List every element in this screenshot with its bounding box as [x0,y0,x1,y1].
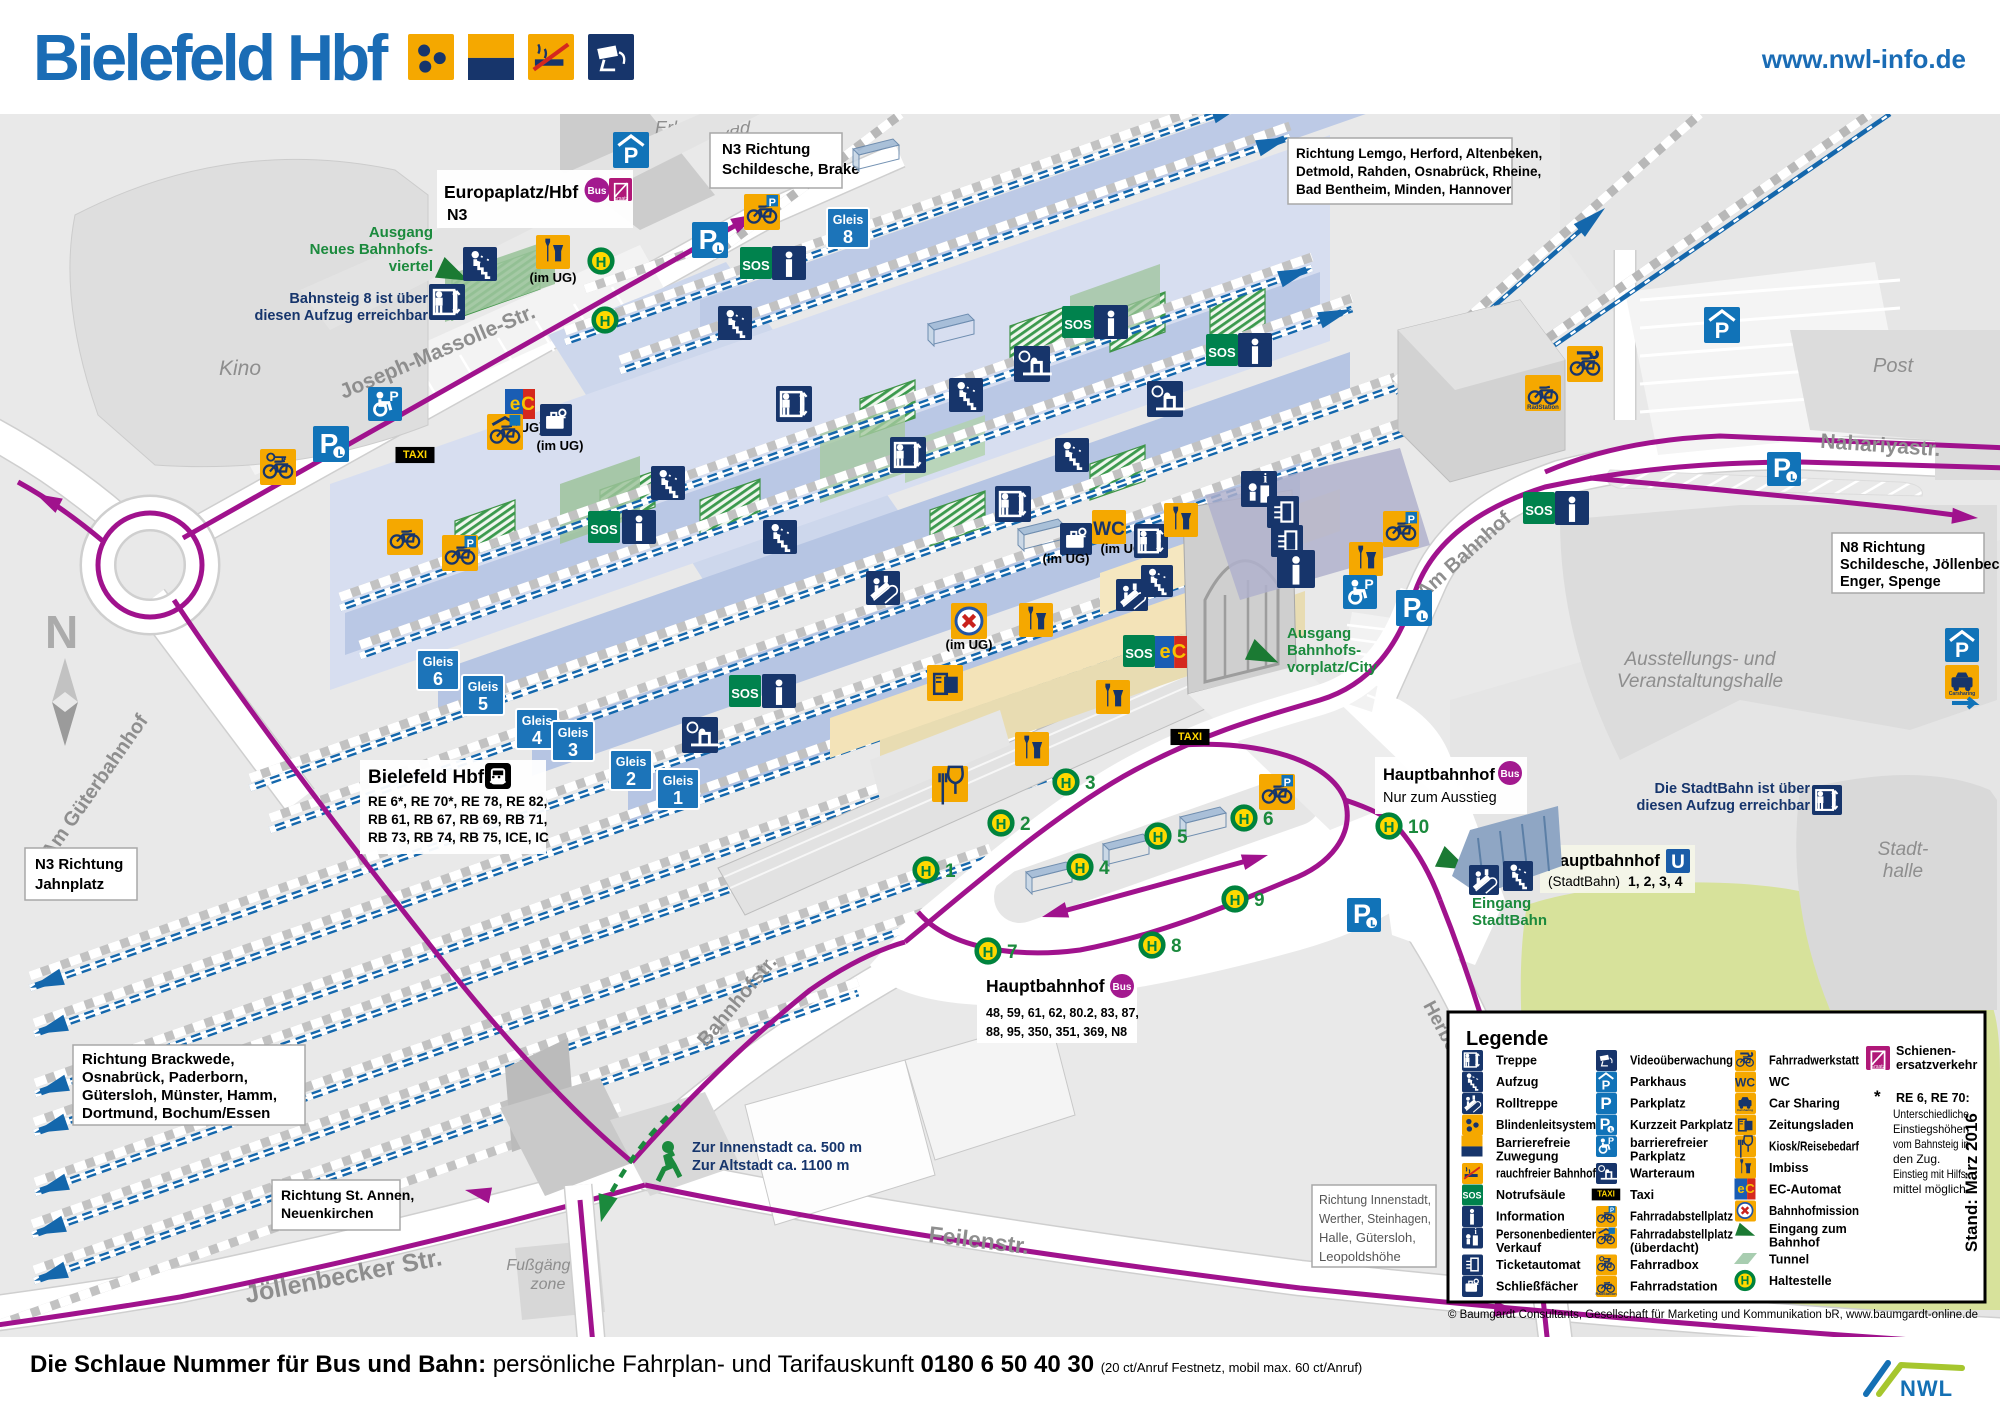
svg-text:viertel: viertel [389,258,433,275]
svg-text:Osnabrück, Paderborn,: Osnabrück, Paderborn, [82,1069,248,1086]
svg-text:Stadt-: Stadt- [1878,839,1929,860]
svg-text:1: 1 [673,788,683,808]
svg-text:vorplatz/City: vorplatz/City [1287,659,1378,676]
svg-text:SOS: SOS [731,686,759,701]
svg-text:P: P [1955,639,1969,662]
svg-text:P: P [1284,777,1291,789]
svg-text:9: 9 [1254,890,1265,911]
svg-text:(im UG): (im UG) [537,438,584,453]
svg-text:StadtBahn: StadtBahn [1472,912,1547,929]
svg-text:Gleis: Gleis [423,655,454,669]
svg-text:N3: N3 [447,207,468,224]
svg-text:H: H [921,863,932,880]
svg-text:Bahnsteig 8 ist über: Bahnsteig 8 ist über [289,291,428,307]
svg-text:H: H [1075,860,1086,877]
svg-text:mittel möglich.: mittel möglich. [1893,1182,1969,1196]
svg-text:H: H [983,944,994,961]
svg-text:© Baumgardt Consultants, Gesel: © Baumgardt Consultants, Gesellschaft fü… [1448,1309,1978,1321]
svg-text:H: H [600,313,611,330]
svg-text:Parkplatz: Parkplatz [1630,1097,1686,1111]
svg-text:Bus: Bus [1113,982,1132,993]
svg-text:Taxi: Taxi [1630,1188,1654,1202]
svg-text:1: 1 [945,861,956,882]
svg-text:N: N [45,606,78,658]
svg-text:48, 59, 61, 62, 80.2, 83, 87,: 48, 59, 61, 62, 80.2, 83, 87, [986,1006,1139,1020]
svg-text:Bielefeld Hbf: Bielefeld Hbf [368,767,485,788]
svg-text:Fahrradabstellplatz: Fahrradabstellplatz [1630,1210,1733,1224]
svg-text:SOS: SOS [742,258,770,273]
svg-text:Leopoldshöhe: Leopoldshöhe [1319,1249,1401,1264]
svg-text:P: P [1608,1136,1614,1146]
svg-text:Fahrradstation: Fahrradstation [1630,1280,1718,1294]
svg-text:e: e [510,394,521,415]
svg-text:Richtung Lemgo, Herford, Alten: Richtung Lemgo, Herford, Altenbeken, [1296,146,1542,161]
svg-text:SOS: SOS [590,522,618,537]
svg-text:Fahrradabstellplatz: Fahrradabstellplatz [1630,1228,1733,1242]
svg-text:Parkplatz: Parkplatz [1630,1150,1686,1164]
svg-text:Neues Bahnhofs-: Neues Bahnhofs- [310,241,433,258]
svg-text:diesen Aufzug erreichbar: diesen Aufzug erreichbar [1636,798,1810,814]
svg-text:diesen Aufzug erreichbar: diesen Aufzug erreichbar [254,308,428,324]
svg-text:Gleis: Gleis [558,726,589,740]
svg-text:Aufzug: Aufzug [1496,1075,1538,1089]
svg-text:NWL: NWL [1900,1376,1953,1401]
svg-text:P: P [1602,1078,1611,1093]
svg-text:Notrufsäule: Notrufsäule [1496,1188,1566,1202]
svg-text:RadStation: RadStation [1527,405,1559,411]
svg-text:P: P [1364,576,1373,592]
svg-text:Ersatz: Ersatz [1871,1064,1886,1070]
svg-text:6: 6 [1263,809,1274,830]
svg-text:Hauptbahnhof: Hauptbahnhof [986,976,1105,996]
svg-text:N3 Richtung: N3 Richtung [722,141,810,158]
svg-text:P: P [624,143,639,168]
svg-text:Ausstellungs- und: Ausstellungs- und [1623,649,1776,670]
svg-text:P: P [1715,318,1730,343]
svg-text:Einstieg mit Hilfs-: Einstieg mit Hilfs- [1893,1167,1969,1181]
svg-text:Eingang zum: Eingang zum [1769,1222,1847,1236]
svg-text:Richtung St. Annen,: Richtung St. Annen, [281,1187,414,1203]
svg-text:Schienen-: Schienen- [1896,1044,1956,1058]
svg-text:Schildesche, Jöllenbeck,: Schildesche, Jöllenbeck, [1840,557,2000,573]
svg-text:Werther, Steinhagen,: Werther, Steinhagen, [1319,1211,1431,1226]
svg-text:e: e [1737,1181,1744,1196]
svg-text:H: H [1741,1274,1750,1288]
svg-text:Zur Altstadt ca. 1100 m: Zur Altstadt ca. 1100 m [692,1158,849,1174]
svg-text:Kiosk/Reisebedarf: Kiosk/Reisebedarf [1769,1140,1860,1154]
svg-text:6: 6 [433,669,443,689]
svg-text:P: P [769,197,776,209]
svg-text:Neuenkirchen: Neuenkirchen [281,1205,374,1221]
svg-text:3: 3 [568,740,578,760]
svg-text:Richtung Innenstadt,: Richtung Innenstadt, [1319,1192,1431,1207]
svg-text:TAXI: TAXI [1178,731,1202,743]
svg-text:Dortmund, Bochum/Essen: Dortmund, Bochum/Essen [82,1105,270,1122]
svg-text:RE 6*, RE 70*, RE 78, RE 82,: RE 6*, RE 70*, RE 78, RE 82, [368,794,547,809]
svg-text:Die StadtBahn ist über: Die StadtBahn ist über [1655,781,1811,797]
svg-text:2: 2 [1020,814,1031,835]
svg-text:Ausgang: Ausgang [369,224,433,241]
svg-text:(im UG): (im UG) [946,637,993,652]
svg-text:SOS: SOS [1462,1191,1481,1201]
svg-text:WC: WC [1093,519,1125,540]
svg-text:Zur Innenstadt ca. 500 m: Zur Innenstadt ca. 500 m [692,1140,862,1156]
svg-text:Personenbedienter: Personenbedienter [1496,1228,1596,1242]
svg-text:Kurzzeit Parkplatz: Kurzzeit Parkplatz [1630,1118,1733,1132]
svg-text:Kino: Kino [219,357,261,380]
svg-text:TAXI: TAXI [1597,1190,1615,1199]
svg-text:(im UG): (im UG) [530,270,577,285]
svg-text:barrierefreier: barrierefreier [1630,1136,1708,1150]
svg-text:Bielefeld Hbf: Bielefeld Hbf [33,21,389,94]
svg-text:rauchfreier Bahnhof: rauchfreier Bahnhof [1496,1167,1597,1181]
svg-text:www.nwl-info.de: www.nwl-info.de [1761,44,1966,74]
svg-text:RB 61, RB 67, RB 69, RB 71,: RB 61, RB 67, RB 69, RB 71, [368,812,547,827]
svg-text:P: P [467,538,474,550]
svg-text:ersatzverkehr: ersatzverkehr [1896,1058,1977,1072]
svg-text:Blindenleitsystem: Blindenleitsystem [1496,1118,1596,1132]
svg-text:SOS: SOS [1525,503,1553,518]
svg-text:C: C [521,394,535,415]
svg-text:Warteraum: Warteraum [1630,1167,1695,1181]
svg-text:TAXI: TAXI [403,449,427,461]
svg-text:Halle, Gütersloh,: Halle, Gütersloh, [1319,1230,1416,1245]
svg-text:Parkhaus: Parkhaus [1630,1075,1686,1089]
svg-text:Stand: März 2016: Stand: März 2016 [1962,1113,1981,1252]
svg-text:P: P [1408,514,1415,526]
svg-text:SOS: SOS [1064,317,1092,332]
svg-text:Carsharing: Carsharing [1949,691,1975,697]
svg-text:Rolltreppe: Rolltreppe [1496,1097,1558,1111]
svg-text:*: * [1874,1087,1881,1106]
svg-text:Die Schlaue Nummer für Bus und: Die Schlaue Nummer für Bus und Bahn: per… [30,1351,1362,1378]
svg-text:Treppe: Treppe [1496,1054,1537,1068]
svg-text:Gleis: Gleis [833,213,864,227]
svg-text:Haltestelle: Haltestelle [1769,1274,1832,1288]
svg-text:Gleis: Gleis [468,680,499,694]
svg-text:Gütersloh, Münster, Hamm,: Gütersloh, Münster, Hamm, [82,1087,277,1104]
svg-text:SOS: SOS [1125,646,1153,661]
svg-text:Imbiss: Imbiss [1769,1161,1809,1175]
svg-text:Videoüberwachung: Videoüberwachung [1630,1054,1733,1068]
svg-text:Fahrradbox: Fahrradbox [1630,1258,1699,1272]
svg-text:Enger, Spenge: Enger, Spenge [1840,574,1941,590]
svg-text:Gleis: Gleis [663,774,694,788]
svg-text:Post: Post [1873,355,1914,377]
svg-text:H: H [1230,892,1241,909]
svg-text:3: 3 [1085,773,1096,794]
svg-text:(StadtBahn): (StadtBahn) [1548,874,1620,889]
svg-text:EC-Automat: EC-Automat [1769,1183,1842,1197]
svg-text:Einstiegshöhen: Einstiegshöhen [1893,1122,1969,1136]
svg-text:Verkauf: Verkauf [1496,1241,1542,1255]
svg-text:N3 Richtung: N3 Richtung [35,856,123,873]
svg-text:1, 2, 3, 4: 1, 2, 3, 4 [1628,873,1683,889]
svg-text:Carsharing: Carsharing [1737,1108,1753,1112]
svg-text:RE 6, RE 70:: RE 6, RE 70: [1896,1091,1970,1105]
svg-text:P: P [1600,1094,1611,1113]
svg-text:2: 2 [626,769,636,789]
svg-text:4: 4 [1099,858,1110,879]
svg-text:5: 5 [1177,827,1188,848]
svg-text:den Zug.: den Zug. [1893,1152,1940,1166]
svg-text:Ersatz: Ersatz [614,196,629,202]
svg-text:Hauptbahnhof: Hauptbahnhof [1548,852,1660,870]
svg-text:vom Bahnsteig in: vom Bahnsteig in [1893,1137,1969,1151]
svg-text:H: H [1061,775,1072,792]
svg-text:Unterschiedliche: Unterschiedliche [1893,1107,1969,1121]
svg-text:P: P [1610,1208,1614,1214]
svg-text:8: 8 [843,227,853,247]
svg-text:C: C [1172,641,1186,663]
svg-text:Bahnhofmission: Bahnhofmission [1769,1204,1859,1218]
svg-text:Eingang: Eingang [1472,895,1531,912]
svg-text:Zeitungsladen: Zeitungsladen [1769,1118,1854,1132]
svg-text:Veranstaltungshalle: Veranstaltungshalle [1617,671,1783,692]
svg-text:RadStation: RadStation [1595,1291,1617,1296]
svg-text:Zuwegung: Zuwegung [1496,1150,1559,1164]
svg-text:halle: halle [1883,861,1923,882]
svg-text:4: 4 [532,728,542,748]
svg-text:Detmold, Rahden, Osnabrück, Rh: Detmold, Rahden, Osnabrück, Rheine, [1296,164,1541,179]
svg-text:WC: WC [1769,1075,1790,1089]
svg-text:Information: Information [1496,1210,1565,1224]
svg-text:H: H [1384,819,1395,836]
svg-text:H: H [996,816,1007,833]
svg-text:C: C [1745,1181,1755,1196]
svg-text:H: H [1147,938,1158,955]
svg-text:Bus: Bus [588,186,607,197]
svg-text:Bus: Bus [1501,769,1520,780]
svg-text:(im UG): (im UG) [1043,551,1090,566]
svg-text:Schildesche, Brake: Schildesche, Brake [722,161,860,178]
svg-text:H: H [1153,829,1164,846]
svg-text:Gleis: Gleis [522,714,553,728]
svg-text:(überdacht): (überdacht) [1630,1241,1699,1255]
svg-text:P: P [389,388,398,404]
svg-text:e: e [1159,641,1170,663]
svg-text:Barrierefreie: Barrierefreie [1496,1136,1570,1150]
svg-text:Legende: Legende [1466,1028,1548,1050]
svg-text:i: i [1263,472,1267,487]
svg-text:Bahnhofs-: Bahnhofs- [1287,642,1361,659]
svg-text:Bad Bentheim, Minden, Hannover: Bad Bentheim, Minden, Hannover [1296,182,1512,197]
svg-text:WC: WC [1735,1076,1755,1090]
svg-text:Gleis: Gleis [616,755,647,769]
svg-text:H: H [1239,811,1250,828]
svg-text:N8 Richtung: N8 Richtung [1840,540,1925,556]
svg-text:RB 73, RB 74, RB 75, ICE, IC: RB 73, RB 74, RB 75, ICE, IC [368,830,549,845]
svg-text:7: 7 [1007,942,1018,963]
svg-text:Ausgang: Ausgang [1287,625,1351,642]
svg-text:Bahnhof: Bahnhof [1769,1236,1821,1250]
svg-text:5: 5 [478,694,488,714]
svg-text:Tunnel: Tunnel [1769,1253,1809,1267]
svg-text:10: 10 [1408,817,1429,838]
svg-text:U: U [1671,852,1685,873]
svg-text:SOS: SOS [1208,345,1236,360]
svg-text:Europaplatz/Hbf: Europaplatz/Hbf [444,182,578,202]
svg-text:Car Sharing: Car Sharing [1769,1097,1840,1111]
svg-text:Hauptbahnhof: Hauptbahnhof [1383,766,1495,784]
svg-text:8: 8 [1171,936,1182,957]
svg-text:Jahnplatz: Jahnplatz [35,876,104,893]
svg-text:Richtung Brackwede,: Richtung Brackwede, [82,1051,235,1068]
svg-text:88, 95, 350, 351, 369, N8: 88, 95, 350, 351, 369, N8 [986,1025,1127,1039]
svg-text:zone: zone [530,1276,566,1293]
svg-text:H: H [596,254,607,271]
svg-text:Schließfächer: Schließfächer [1496,1280,1578,1294]
svg-text:Nur zum Ausstieg: Nur zum Ausstieg [1383,790,1497,806]
svg-text:Ticketautomat: Ticketautomat [1496,1258,1581,1272]
svg-text:Fahrradwerkstatt: Fahrradwerkstatt [1769,1054,1860,1068]
